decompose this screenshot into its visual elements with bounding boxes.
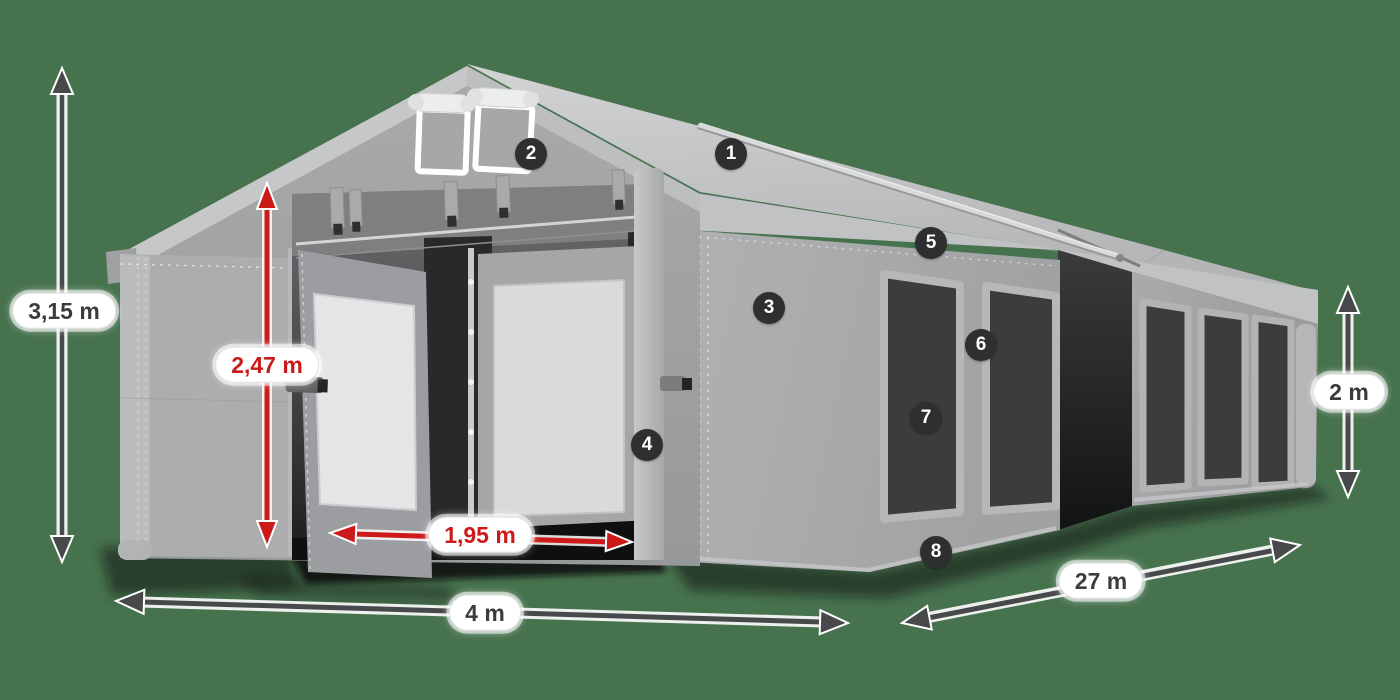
callout-badge-4[interactable]: 4	[631, 429, 663, 461]
label-entrance-height: 2,47 m	[215, 347, 319, 383]
middle-open-section	[1058, 230, 1140, 530]
callout-badge-3[interactable]: 3	[753, 292, 785, 324]
label-entrance-width: 1,95 m	[428, 517, 532, 553]
label-tent-width: 4 m	[449, 595, 521, 631]
callout-badge-1[interactable]: 1	[715, 138, 747, 170]
left-door-panel	[285, 250, 432, 578]
label-side-wall-height: 2 m	[1313, 374, 1385, 410]
callout-badge-2[interactable]: 2	[515, 138, 547, 170]
callout-badge-7[interactable]: 7	[910, 402, 942, 434]
label-tent-length: 27 m	[1059, 563, 1143, 599]
callout-badge-8[interactable]: 8	[920, 536, 952, 568]
label-total-height: 3,15 m	[12, 293, 116, 329]
callout-badge-6[interactable]: 6	[965, 329, 997, 361]
front-side-wall	[688, 230, 1060, 572]
tent-dimensions-page: { "title": "Marquee tent dimensions diag…	[0, 0, 1400, 700]
diagram-stage: 3,15 m 2,47 m 1,95 m 4 m 27 m 2 m 1 2 3 …	[0, 0, 1400, 700]
tent-illustration	[0, 0, 1400, 700]
callout-badge-5[interactable]: 5	[915, 227, 947, 259]
